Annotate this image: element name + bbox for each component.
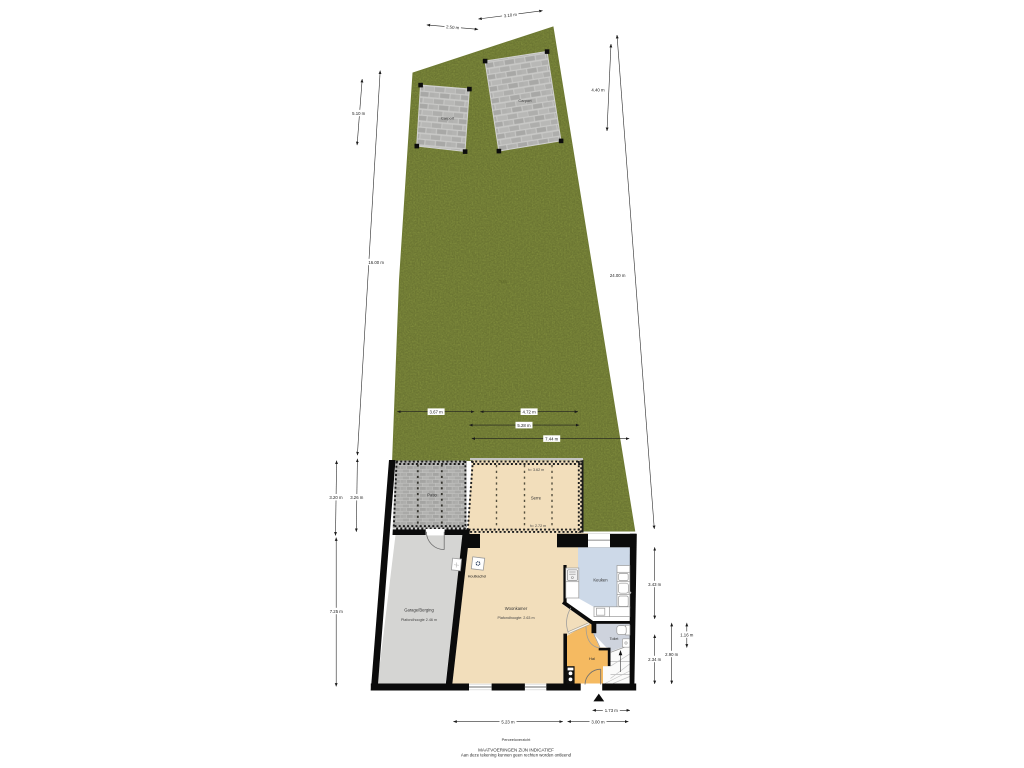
svg-text:16.00 m: 16.00 m <box>368 260 384 265</box>
svg-text:3.67 m: 3.67 m <box>430 410 444 415</box>
svg-text:24.00 m: 24.00 m <box>610 273 626 278</box>
svg-text:Toilet: Toilet <box>610 637 620 641</box>
svg-text:4.40 m: 4.40 m <box>591 87 605 92</box>
svg-text:Carport: Carport <box>441 116 455 121</box>
svg-text:h= 2.72 m: h= 2.72 m <box>530 524 547 528</box>
svg-text:Carport: Carport <box>518 98 532 103</box>
svg-text:Perceeloverzicht: Perceeloverzicht <box>502 737 532 742</box>
svg-text:Hal: Hal <box>589 656 595 661</box>
svg-text:Garage/Berging: Garage/Berging <box>404 608 434 613</box>
svg-text:7.25 m: 7.25 m <box>330 609 344 614</box>
svg-text:Serre: Serre <box>531 496 542 501</box>
svg-text:1.16 m: 1.16 m <box>680 633 694 638</box>
svg-text:3.00 m: 3.00 m <box>591 719 605 724</box>
svg-text:2.34 m: 2.34 m <box>648 657 662 662</box>
svg-text:7.44 m: 7.44 m <box>545 437 559 442</box>
svg-text:5.10 m: 5.10 m <box>352 111 366 116</box>
svg-text:Aan deze tekening kunnen geen: Aan deze tekening kunnen geen rechten wo… <box>461 753 572 758</box>
svg-text:4.72 m: 4.72 m <box>523 410 537 415</box>
svg-text:5.28 m: 5.28 m <box>517 423 531 428</box>
svg-text:3.20 m: 3.20 m <box>329 495 343 500</box>
svg-text:2.90 m: 2.90 m <box>665 652 679 657</box>
svg-text:Keuken: Keuken <box>593 578 608 583</box>
svg-text:Plafondhoogte 2.46 m: Plafondhoogte 2.46 m <box>401 618 437 622</box>
svg-text:Tuin: Tuin <box>499 279 508 284</box>
svg-text:1.73 m: 1.73 m <box>605 708 619 713</box>
svg-text:3.43 m: 3.43 m <box>648 582 662 587</box>
svg-text:Patio: Patio <box>427 493 437 498</box>
svg-text:5.23 m: 5.23 m <box>501 719 515 724</box>
svg-text:3.26 m: 3.26 m <box>350 495 364 500</box>
svg-text:h= 3.62 m: h= 3.62 m <box>528 468 545 472</box>
svg-text:Plafondhoogte: 2.63 m: Plafondhoogte: 2.63 m <box>497 616 534 620</box>
svg-text:Houtkachel: Houtkachel <box>468 575 487 579</box>
svg-text:Woonkamer: Woonkamer <box>505 606 528 611</box>
